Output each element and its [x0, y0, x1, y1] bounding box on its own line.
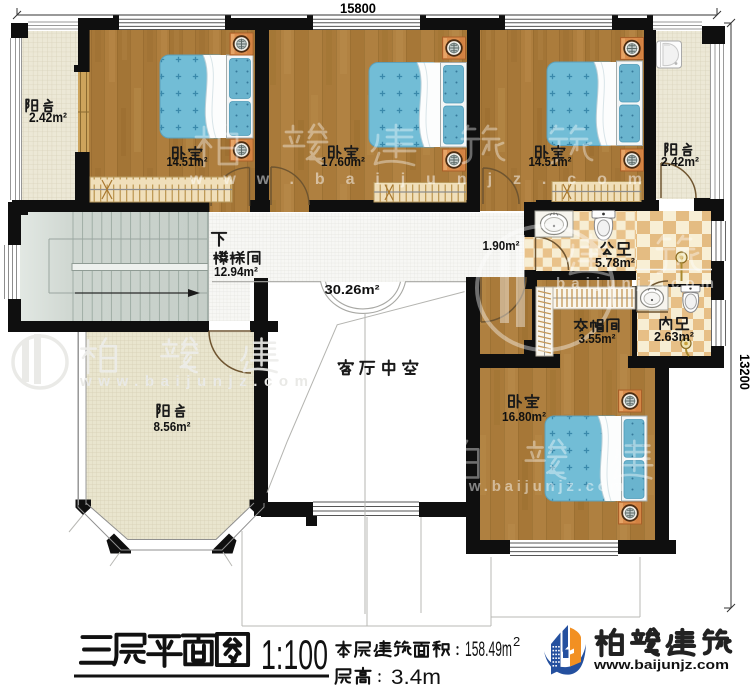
svg-text:14.51m²: 14.51m² [167, 155, 208, 169]
svg-text:14.51m²: 14.51m² [529, 155, 572, 169]
svg-text:15800: 15800 [340, 0, 376, 16]
svg-text:www.baijunjz.com: www.baijunjz.com [593, 657, 729, 672]
svg-text:2: 2 [513, 634, 520, 649]
svg-text:158.49m: 158.49m [465, 638, 512, 661]
svg-text:8.56m²: 8.56m² [154, 419, 192, 434]
svg-text:12.94m²: 12.94m² [214, 265, 258, 279]
svg-text:1.90m²: 1.90m² [483, 238, 521, 253]
svg-text:17.60m²: 17.60m² [321, 155, 365, 169]
svg-text:13200: 13200 [737, 354, 750, 390]
svg-text:3.55m²: 3.55m² [579, 332, 616, 346]
svg-text:16.80m²: 16.80m² [502, 409, 547, 424]
svg-text:5.78m²: 5.78m² [595, 256, 635, 270]
svg-text:1:100: 1:100 [261, 631, 328, 678]
svg-text:2.42m²: 2.42m² [661, 154, 700, 169]
svg-text:2.63m²: 2.63m² [654, 330, 694, 344]
svg-text:3.4m: 3.4m [391, 666, 441, 689]
svg-text:2.42m²: 2.42m² [29, 110, 67, 125]
svg-text:30.26m²: 30.26m² [325, 282, 381, 297]
